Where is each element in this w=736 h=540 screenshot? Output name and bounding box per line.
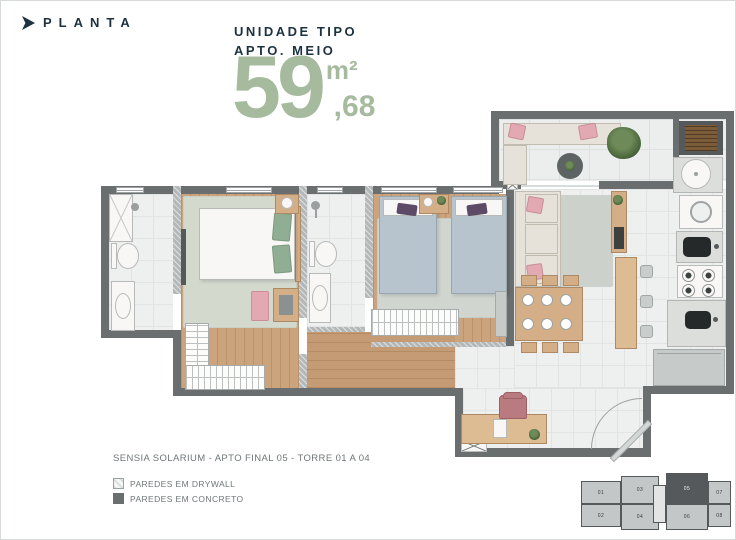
- toilet2-icon: [315, 241, 337, 267]
- kitchen-island: [615, 257, 637, 349]
- keyplan-unit-06: 06: [666, 504, 708, 530]
- drywall-bath2-hall: [307, 327, 365, 332]
- plant-icon: [607, 127, 641, 159]
- page-title: PLANTA: [43, 15, 137, 30]
- pillow: [526, 196, 545, 215]
- keyplan-unit-05-highlighted: 05: [666, 473, 708, 504]
- tv-icon: [614, 227, 624, 249]
- lamp-icon: [423, 197, 433, 207]
- wardrobe: [185, 365, 265, 390]
- wall-right: [726, 111, 734, 394]
- wall-left: [101, 186, 109, 338]
- drywall-bath2-bedroom2: [365, 186, 373, 298]
- dining-chair: [542, 342, 558, 353]
- plate-icon: [560, 294, 572, 306]
- balcony-sofa-chaise: [503, 145, 527, 185]
- shower-head-icon: [311, 201, 320, 210]
- fridge-handle: [657, 353, 721, 354]
- window-bedroom2-b: [453, 187, 503, 193]
- lamp-icon: [281, 197, 293, 209]
- plate-icon: [541, 294, 553, 306]
- sink1-basin-icon: [115, 293, 131, 319]
- drywall-swatch-icon: [113, 478, 124, 489]
- wall-bathroom1-bottom: [101, 330, 181, 338]
- legend: PAREDES EM DRYWALL PAREDES EM CONCRETO: [113, 478, 244, 508]
- legend-label: PAREDES EM DRYWALL: [130, 479, 235, 489]
- tv-panel: [181, 229, 186, 285]
- burner-icon: [682, 269, 695, 282]
- dining-chair: [563, 275, 579, 286]
- wall-bedroom2-living: [506, 181, 514, 346]
- legend-item-drywall: PAREDES EM DRYWALL: [113, 478, 244, 489]
- plant-icon: [565, 161, 575, 171]
- plate-icon: [522, 294, 534, 306]
- faucet-icon: [714, 244, 719, 249]
- pillow: [272, 244, 292, 273]
- window-master-bedroom: [226, 187, 272, 193]
- hall-floor: [307, 332, 455, 388]
- office-chair-back: [503, 392, 523, 399]
- pillow: [508, 123, 527, 141]
- refrigerator: [653, 349, 725, 386]
- window-bedroom2-a: [381, 187, 437, 193]
- dining-chair: [563, 342, 579, 353]
- plant-icon: [613, 195, 623, 205]
- wall-balcony-left: [491, 111, 499, 189]
- window-bathroom2: [317, 187, 343, 193]
- desk-lamp: [493, 419, 507, 438]
- brand-bullet-icon: [22, 16, 35, 30]
- dining-chair: [521, 342, 537, 353]
- tank-drain: [694, 172, 698, 176]
- bedroom2-dresser: [495, 291, 507, 337]
- keyplan-unit-07: 07: [708, 481, 731, 504]
- shower1-icon: [109, 194, 133, 242]
- keyplan-unit-08: 08: [708, 504, 731, 527]
- legend-item-concrete: PAREDES EM CONCRETO: [113, 493, 244, 504]
- wall-step-left: [173, 330, 181, 396]
- key-plan: 01 02 03 04 05 06 07 08: [573, 465, 735, 537]
- wall-balcony-top: [491, 111, 734, 119]
- wall-bottom-right: [643, 386, 734, 394]
- keyplan-core: [653, 485, 666, 523]
- washer-drum: [690, 201, 712, 223]
- wall-balcony-living-b: [599, 181, 679, 189]
- pillow: [578, 123, 598, 141]
- plate-icon: [560, 318, 572, 330]
- balcony-sliding-door: [521, 183, 599, 187]
- drywall-bath1-master: [173, 186, 181, 294]
- dining-chair: [521, 275, 537, 286]
- drywall-master-hall: [299, 354, 307, 388]
- kitchen-sink-icon: [683, 237, 711, 257]
- bench: [251, 291, 269, 321]
- wardrobe: [185, 323, 209, 369]
- entry-floor-upper: [455, 346, 514, 388]
- toilet1-icon: [117, 243, 139, 269]
- keyplan-unit-01: 01: [581, 481, 621, 504]
- floor-plan: [101, 111, 735, 457]
- window-bathroom1: [116, 187, 144, 193]
- sofa-cushion: [525, 224, 558, 254]
- stool: [640, 295, 653, 308]
- plan-sheet: PLANTA UNIDADE TIPO APTO. MEIO 59 m² ,68: [0, 0, 736, 540]
- plate-icon: [522, 318, 534, 330]
- dining-chair: [542, 275, 558, 286]
- plant-icon: [529, 429, 540, 440]
- burner-icon: [702, 269, 715, 282]
- plate-icon: [541, 318, 553, 330]
- faucet-icon: [713, 317, 718, 322]
- stool: [640, 325, 653, 338]
- pillow: [272, 212, 292, 241]
- legend-label: PAREDES EM CONCRETO: [130, 494, 244, 504]
- master-headboard: [295, 206, 301, 282]
- shower-stem: [315, 210, 317, 218]
- concrete-swatch-icon: [113, 493, 124, 504]
- area-unit: m²: [326, 55, 358, 86]
- burner-icon: [702, 284, 715, 297]
- bbq-grill-icon: [685, 125, 717, 151]
- kitchen-sink2-icon: [685, 311, 711, 329]
- plant-icon: [437, 196, 446, 205]
- sink2-basin-icon: [312, 285, 328, 311]
- wardrobe: [371, 309, 459, 336]
- shower-head-icon: [131, 203, 139, 211]
- drywall-bedroom2-hall: [371, 342, 506, 347]
- tv-on-dresser: [279, 295, 293, 315]
- plan-caption: SENSIA SOLARIUM - APTO FINAL 05 - TORRE …: [113, 453, 370, 464]
- keyplan-unit-02: 02: [581, 504, 621, 527]
- stool: [640, 265, 653, 278]
- burner-icon: [682, 284, 695, 297]
